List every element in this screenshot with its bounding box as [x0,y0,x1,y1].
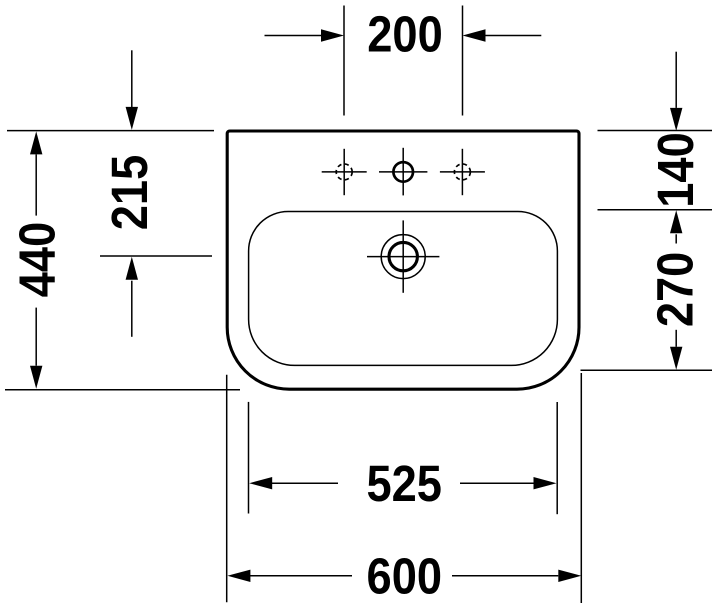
svg-text:215: 215 [101,155,158,231]
svg-text:270: 270 [647,252,704,328]
svg-text:200: 200 [367,6,443,63]
svg-text:140: 140 [647,132,704,208]
svg-text:600: 600 [367,547,443,604]
svg-text:440: 440 [9,222,66,298]
svg-text:525: 525 [366,455,442,512]
